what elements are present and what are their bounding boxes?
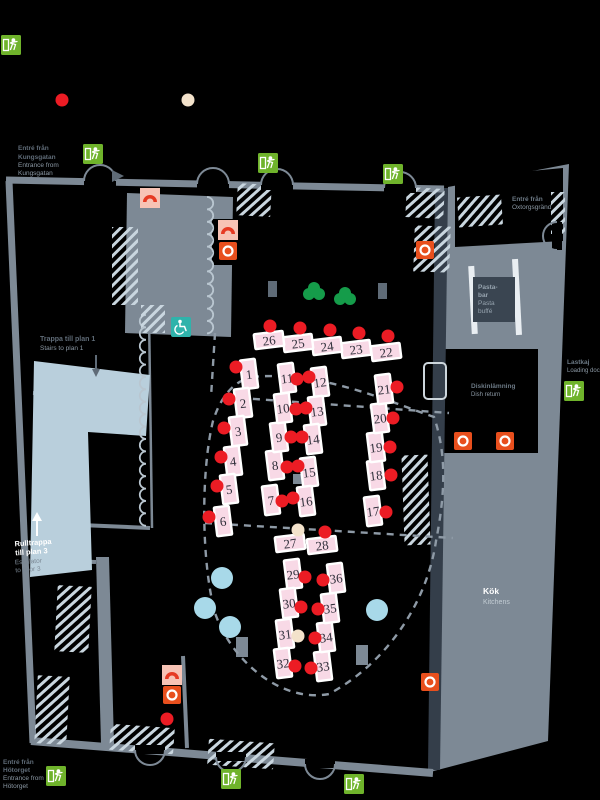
table-number: 29 bbox=[286, 566, 301, 582]
door bbox=[305, 759, 335, 779]
left-wall bbox=[9, 181, 33, 743]
red-dot bbox=[324, 324, 337, 337]
entrance-bottom-left-label: Entré från bbox=[3, 758, 34, 766]
stairs-label-sv: Trappa till plan 1 bbox=[40, 336, 95, 343]
blue-circle bbox=[219, 616, 241, 638]
table-number: 17 bbox=[366, 503, 381, 520]
table-number: 24 bbox=[320, 338, 335, 355]
red-dot bbox=[294, 322, 307, 335]
loading-dock-label-sv: Lastkaj bbox=[567, 359, 590, 366]
table-16: 16 bbox=[297, 486, 315, 517]
kitchens-label-en: Kitchens bbox=[483, 599, 510, 606]
table-number: 10 bbox=[276, 400, 291, 416]
red-dot bbox=[299, 571, 312, 584]
dish-return-label-en: Dish return bbox=[471, 392, 500, 398]
table-19: 19 bbox=[367, 432, 385, 463]
red-dot bbox=[287, 492, 300, 505]
table-36: 36 bbox=[327, 563, 345, 594]
red-dot bbox=[56, 94, 69, 107]
table-number: 16 bbox=[299, 493, 314, 510]
pasta-bar-label: Pasta- bbox=[478, 284, 498, 291]
table-2: 2 bbox=[234, 388, 252, 419]
floor-plan-page: 1234567891011121314151617181920212223242… bbox=[0, 0, 600, 800]
hatched-area bbox=[141, 305, 165, 333]
table-17: 17 bbox=[364, 496, 382, 527]
tables-layer: 1234567891011121314151617181920212223242… bbox=[214, 331, 402, 682]
emergency-exit-icon bbox=[221, 769, 241, 789]
red-dot bbox=[303, 371, 316, 384]
pillar bbox=[356, 645, 368, 665]
entrance-bottom-left-label: Entrance from bbox=[3, 775, 44, 782]
table-1: 1 bbox=[240, 359, 258, 390]
blue-circle bbox=[366, 599, 388, 621]
table-number: 33 bbox=[316, 658, 331, 674]
fire-hose-icon bbox=[140, 188, 160, 208]
table-28: 28 bbox=[307, 536, 338, 555]
stage-speaker bbox=[268, 281, 277, 297]
fire-hose-icon bbox=[218, 220, 238, 240]
table-15: 15 bbox=[300, 457, 318, 488]
red-dot bbox=[384, 441, 397, 454]
red-dot bbox=[289, 660, 302, 673]
red-dot bbox=[305, 662, 318, 675]
table-number: 26 bbox=[262, 332, 277, 349]
red-dot bbox=[203, 511, 216, 524]
hatched-area bbox=[34, 675, 70, 745]
red-dot bbox=[317, 574, 330, 587]
entrance-top-left-label: Kungsgatan bbox=[18, 154, 56, 161]
blue-circle bbox=[194, 597, 216, 619]
entrance-top-left-label: Kungsgatan bbox=[18, 170, 53, 177]
red-dot bbox=[291, 373, 304, 386]
red-dot bbox=[380, 506, 393, 519]
red-dot bbox=[161, 713, 174, 726]
emergency-exit-icon bbox=[258, 153, 278, 173]
fire-extinguisher-icon bbox=[416, 241, 434, 259]
red-dot bbox=[382, 330, 395, 343]
lower-left-wall bbox=[96, 557, 114, 744]
pasta-bar-label: buffé bbox=[478, 308, 493, 315]
table-24: 24 bbox=[312, 337, 343, 356]
cream-dot bbox=[182, 94, 195, 107]
table-20: 20 bbox=[371, 403, 389, 434]
table-22: 22 bbox=[371, 343, 402, 362]
red-dot bbox=[319, 526, 332, 539]
emergency-exit-icon bbox=[83, 144, 103, 164]
table-number: 31 bbox=[278, 626, 293, 642]
table-number: 32 bbox=[276, 655, 291, 671]
fire-extinguisher-icon bbox=[454, 432, 472, 450]
fire-extinguisher-icon bbox=[163, 686, 181, 704]
table-23: 23 bbox=[341, 340, 372, 359]
emergency-exit-icon bbox=[564, 381, 584, 401]
fire-extinguisher-icon bbox=[219, 242, 237, 260]
tree-icon bbox=[303, 282, 325, 300]
table-31: 31 bbox=[276, 619, 294, 650]
entrance-bottom-left-label: Hötorget bbox=[3, 767, 31, 774]
pasta-bar-label: bar bbox=[478, 292, 489, 299]
emergency-exit-icon bbox=[344, 774, 364, 794]
table-12: 12 bbox=[311, 367, 329, 398]
table-27: 27 bbox=[275, 534, 306, 553]
table-number: 18 bbox=[369, 467, 384, 483]
emergency-exit-icon bbox=[46, 766, 66, 786]
hatched-area bbox=[457, 195, 503, 228]
table-6: 6 bbox=[214, 506, 232, 537]
table-30: 30 bbox=[280, 588, 298, 619]
entrance-top-right-label: Entré från bbox=[512, 195, 543, 203]
table-number: 25 bbox=[291, 335, 306, 351]
table-number: 21 bbox=[377, 381, 392, 397]
blue-circle bbox=[211, 567, 233, 589]
red-dot bbox=[300, 402, 313, 415]
table-number: 23 bbox=[349, 341, 364, 357]
pillar bbox=[293, 474, 302, 484]
red-dot bbox=[211, 480, 224, 493]
table-21: 21 bbox=[375, 374, 393, 405]
red-dot bbox=[391, 381, 404, 394]
fire-extinguisher-icon bbox=[421, 673, 439, 691]
stairs-label-en: Stairs to plan 1 bbox=[40, 345, 84, 352]
door bbox=[197, 168, 229, 189]
red-dot bbox=[387, 412, 400, 425]
table-number: 36 bbox=[329, 570, 344, 587]
door bbox=[84, 165, 116, 186]
hatched-area bbox=[112, 227, 138, 305]
table-26: 26 bbox=[254, 331, 285, 350]
hatched-area bbox=[401, 455, 430, 546]
loading-dock-label-en: Loading dock bbox=[567, 368, 600, 374]
red-dot bbox=[353, 327, 366, 340]
floor-plan-svg: 1234567891011121314151617181920212223242… bbox=[0, 0, 600, 800]
kitchens-label-sv: Kök bbox=[483, 586, 499, 596]
red-dot bbox=[292, 460, 305, 473]
table-10: 10 bbox=[274, 393, 292, 424]
red-dot bbox=[385, 469, 398, 482]
entrance-bottom-left-label: Hötorget bbox=[3, 783, 28, 790]
red-dot bbox=[264, 320, 277, 333]
dish-return-label-sv: Diskinlämning bbox=[471, 383, 515, 390]
fire-hose-icon bbox=[162, 665, 182, 685]
fire-extinguisher-icon bbox=[496, 432, 514, 450]
entrance-top-left-label: Entré från bbox=[18, 144, 49, 152]
red-dot bbox=[295, 601, 308, 614]
table-number: 27 bbox=[283, 535, 298, 552]
trees-layer bbox=[303, 282, 356, 305]
stage-speaker bbox=[378, 283, 387, 299]
table-number: 35 bbox=[323, 600, 338, 616]
table-3: 3 bbox=[229, 416, 247, 447]
red-dot bbox=[223, 393, 236, 406]
cream-dot bbox=[292, 524, 305, 537]
hatched-area bbox=[54, 585, 91, 653]
red-dot bbox=[312, 603, 325, 616]
wall-segment bbox=[149, 314, 152, 528]
table-18: 18 bbox=[367, 460, 385, 491]
red-dot bbox=[276, 495, 289, 508]
table-number: 28 bbox=[315, 537, 330, 553]
emergency-exit-icon bbox=[1, 35, 21, 55]
table-number: 22 bbox=[379, 344, 394, 360]
red-dot bbox=[309, 632, 322, 645]
red-dot bbox=[296, 431, 309, 444]
red-dot bbox=[230, 361, 243, 374]
table-number: 19 bbox=[369, 439, 384, 455]
kitchen-wing bbox=[430, 164, 569, 772]
emergency-exit-icon bbox=[383, 164, 403, 184]
table-number: 30 bbox=[282, 595, 297, 611]
tree-icon bbox=[334, 287, 356, 305]
red-dot bbox=[215, 451, 228, 464]
red-dot bbox=[218, 422, 231, 435]
pillar bbox=[236, 637, 248, 657]
table-number: 20 bbox=[373, 410, 388, 426]
wall-segment bbox=[183, 656, 187, 748]
red-dot bbox=[281, 461, 294, 474]
pasta-bar-label: Pasta bbox=[478, 300, 495, 307]
table-4: 4 bbox=[224, 446, 242, 477]
wheelchair-accessible-icon bbox=[171, 317, 191, 337]
entrance-top-left-label: Entrance from bbox=[18, 162, 59, 169]
table-25: 25 bbox=[283, 334, 314, 353]
cream-dot bbox=[292, 630, 305, 643]
entrance-top-right-label: Oxtorgsgränd bbox=[512, 204, 552, 211]
